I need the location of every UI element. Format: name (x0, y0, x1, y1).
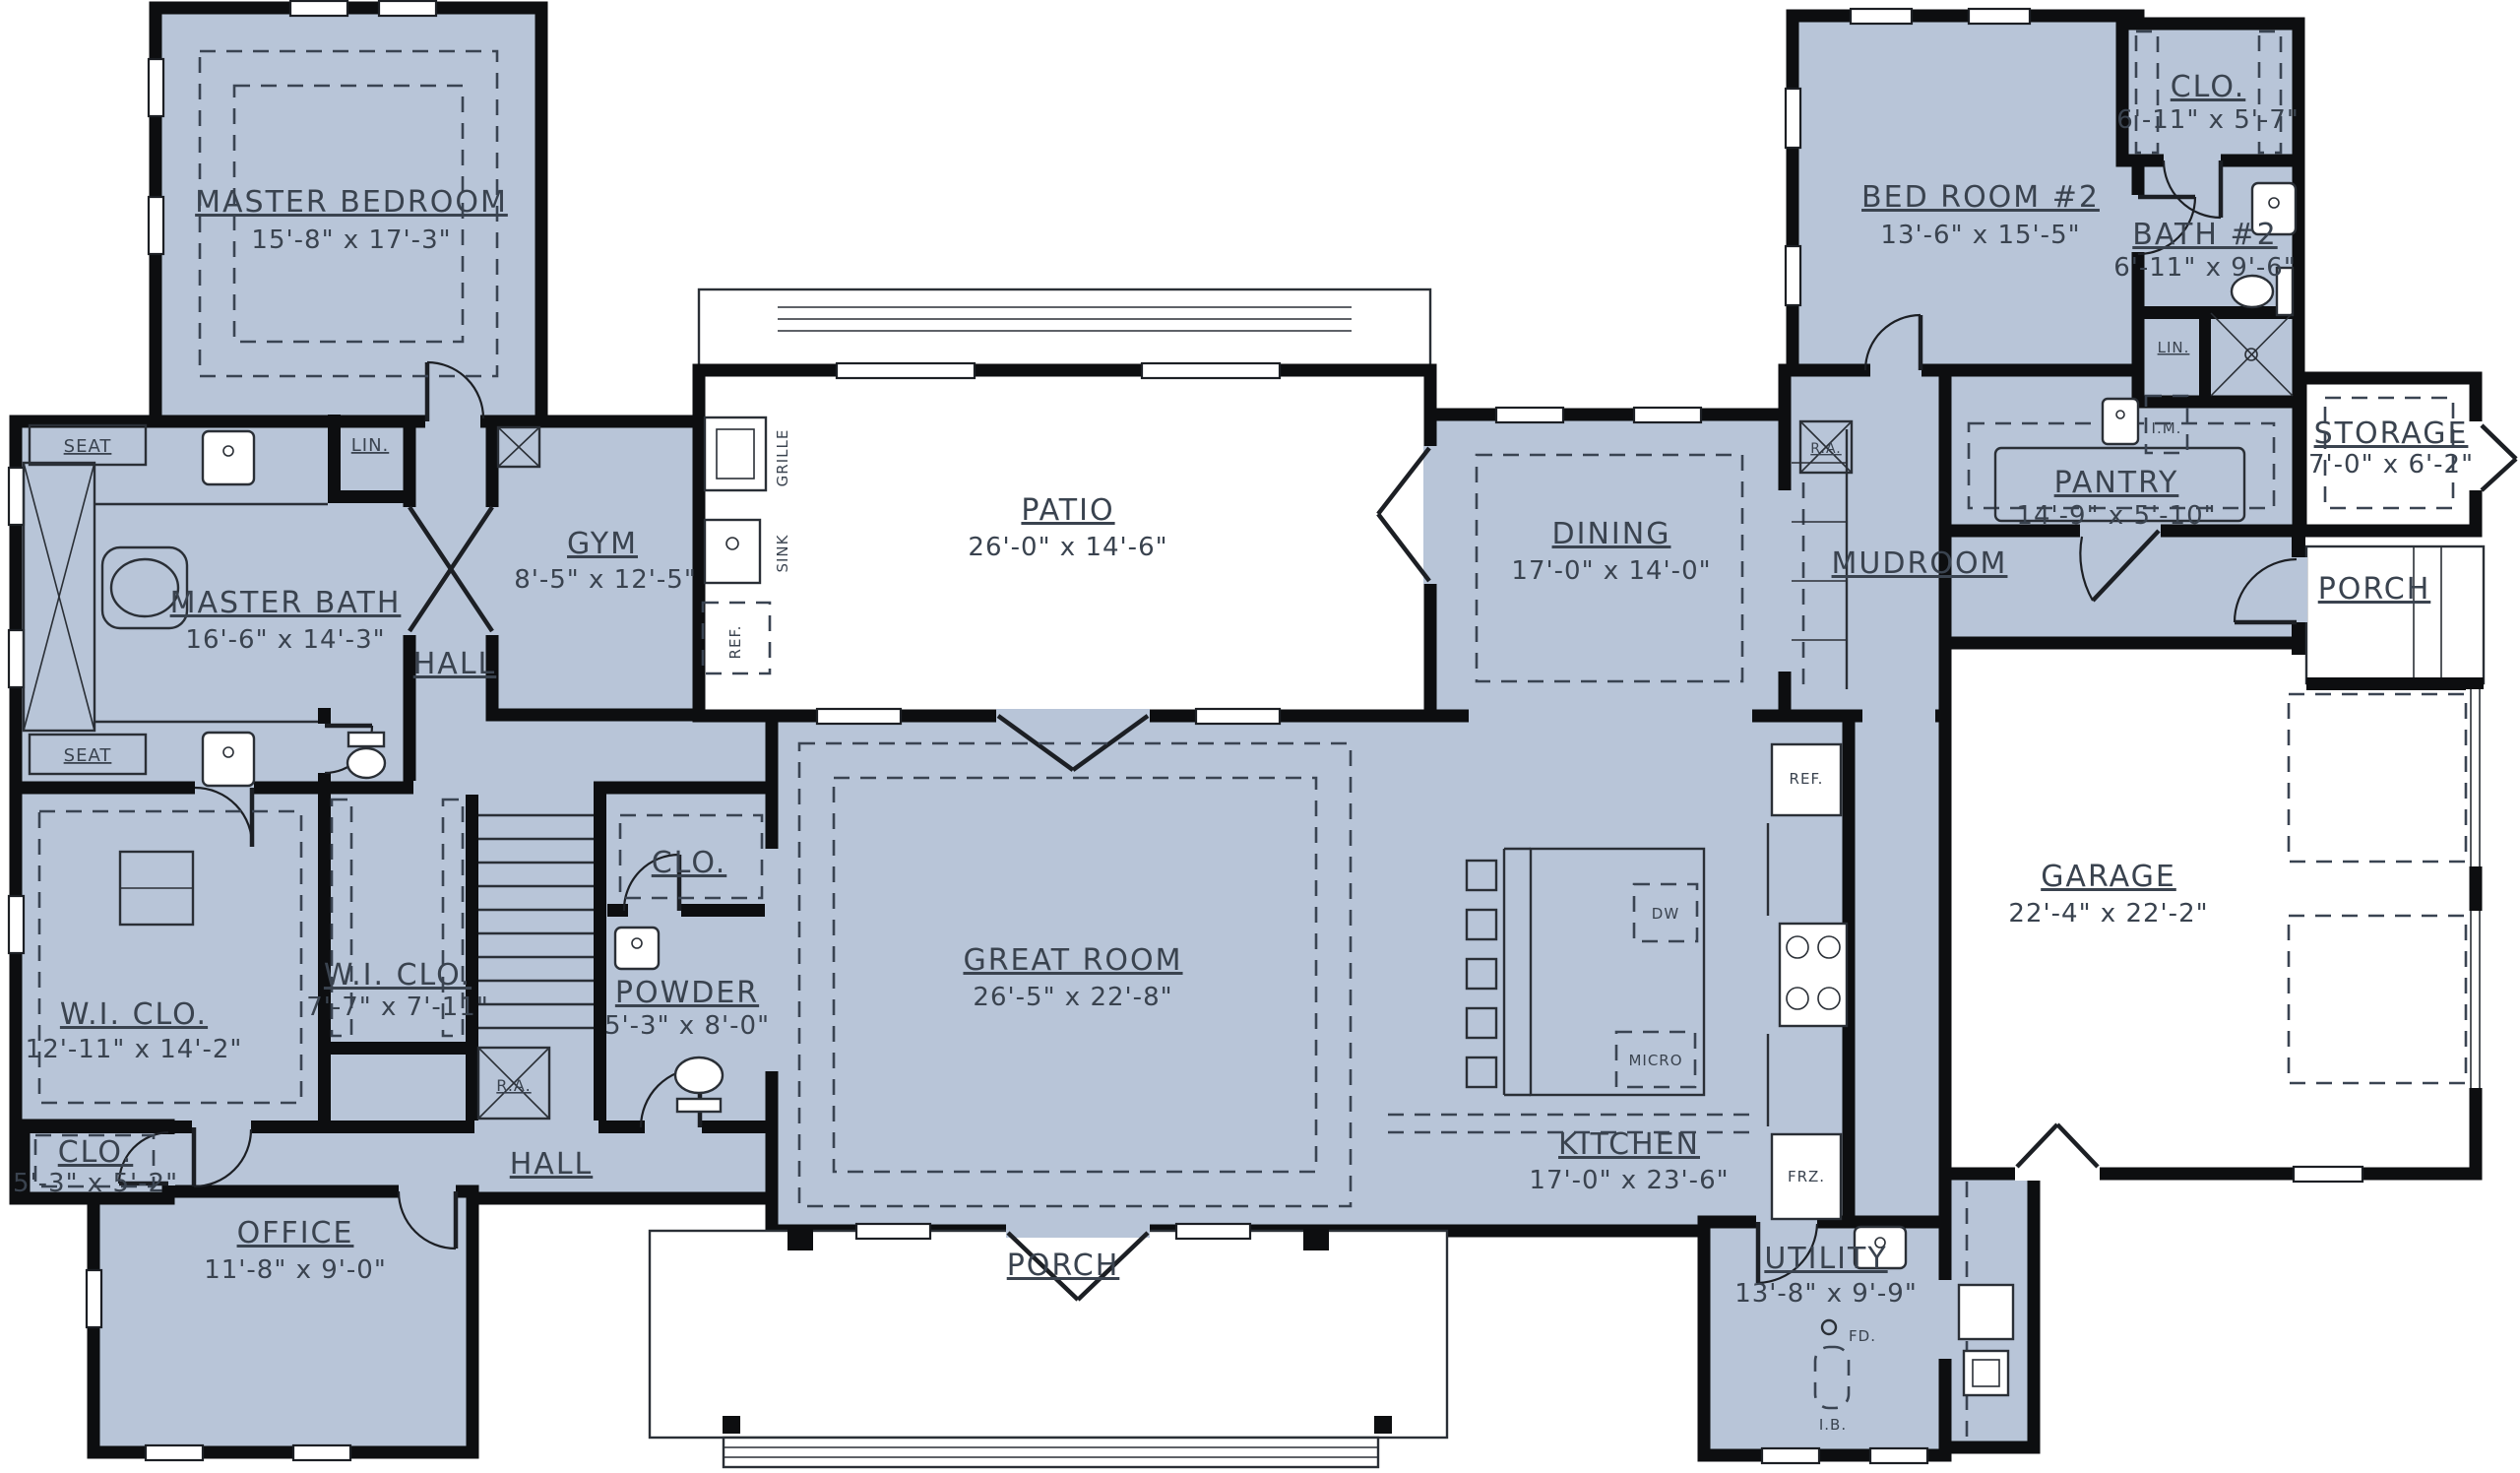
dims-patio: 26'-0" x 14'-6" (968, 533, 1167, 562)
label-closet2: CLO. (2171, 70, 2246, 104)
window (146, 1445, 203, 1460)
toilet-icon (675, 1057, 723, 1093)
sink-icon (203, 733, 254, 786)
window (1196, 709, 1280, 724)
label-dishwasher: DW (1652, 905, 1679, 923)
label-hall-lower: HALL (510, 1147, 594, 1182)
porch-post (1374, 1416, 1392, 1434)
label-storage: STORAGE (2314, 416, 2469, 451)
window (1634, 408, 1701, 422)
sink-icon (705, 520, 760, 583)
porch-post (723, 1416, 740, 1434)
window (87, 1270, 101, 1327)
porch-front-steps (724, 1438, 1378, 1467)
label-hall-upper: HALL (413, 647, 497, 681)
label-patio: PATIO (1021, 493, 1114, 528)
label-linen-master: LIN. (351, 435, 390, 456)
floor-plan-drawing: MASTER BEDROOM 15'-8" x 17'-3" MASTER BA… (0, 0, 2520, 1473)
dims-wic-hall: 7'-7" x 7'-11" (306, 993, 489, 1022)
room-porch-right (2306, 546, 2484, 683)
water-heater-icon (1964, 1351, 2008, 1395)
window (817, 709, 901, 724)
label-linen-bath2: LIN. (2158, 339, 2190, 356)
window (293, 1445, 350, 1460)
label-wic-master: W.I. CLO. (60, 997, 208, 1032)
dims-closet2: 6'-11" x 5'-7" (2116, 105, 2299, 135)
label-freezer: FRZ. (1788, 1168, 1825, 1185)
dims-gym: 8'-5" x 12'-5" (514, 565, 697, 595)
window (290, 1, 347, 16)
window (1851, 9, 1912, 24)
window (1969, 9, 2030, 24)
dims-office: 11'-8" x 9'-0" (204, 1255, 387, 1285)
window (1870, 1448, 1927, 1463)
label-wic-hall: W.I. CLO. (324, 958, 472, 993)
label-return-air-dining: R.A. (1810, 441, 1841, 457)
label-bedroom2: BED ROOM #2 (1861, 180, 2100, 215)
grill-icon (705, 417, 766, 490)
label-bath2: BATH #2 (2132, 218, 2277, 252)
window (1496, 408, 1563, 422)
dims-wic-master: 12'-11" x 14'-2" (26, 1035, 243, 1064)
label-ironing-board: I.B. (1819, 1416, 1847, 1434)
window (149, 59, 163, 116)
label-patio-sink: SINK (774, 534, 791, 572)
dims-garage: 22'-4" x 22'-2" (2008, 899, 2208, 929)
toilet-icon (347, 748, 385, 778)
sink-icon (2103, 399, 2138, 444)
water-heater-icon (1959, 1285, 2013, 1339)
label-ice-maker: I.M. (2152, 419, 2182, 437)
window (2294, 1167, 2362, 1182)
porch-column (1303, 1225, 1329, 1250)
window (149, 197, 163, 254)
label-porch-front: PORCH (1007, 1249, 1120, 1283)
label-gym: GYM (567, 527, 638, 561)
window (856, 1224, 930, 1239)
window (837, 363, 975, 378)
dims-master-bedroom: 15'-8" x 17'-3" (251, 225, 451, 255)
window (9, 630, 24, 687)
dims-storage: 7'-0" x 6'-2" (2308, 450, 2474, 480)
label-garage: GARAGE (2041, 860, 2176, 894)
label-mudroom: MUDROOM (1832, 546, 2008, 581)
porch-right-back-wall (2306, 677, 2484, 690)
chase (498, 427, 539, 467)
window (1142, 363, 1280, 378)
label-floor-drain: FD. (1849, 1327, 1876, 1345)
label-master-bedroom: MASTER BEDROOM (195, 185, 508, 220)
dims-dining: 17'-0" x 14'-0" (1511, 556, 1711, 586)
label-refrigerator: REF. (1790, 770, 1824, 788)
label-clo-office: CLO. (58, 1135, 134, 1170)
floor-plan-page: MASTER BEDROOM 15'-8" x 17'-3" MASTER BA… (0, 0, 2520, 1473)
dims-pantry: 14'-9" x 5'-10" (2016, 501, 2216, 531)
dims-clo-office: 5'-3" x 5'-2" (13, 1169, 178, 1198)
label-utility: UTILITY (1764, 1242, 1887, 1276)
window (1786, 246, 1800, 305)
window (1786, 89, 1800, 148)
label-seat-top: SEAT (64, 436, 112, 457)
porch-column (787, 1225, 813, 1250)
label-great-room: GREAT ROOM (963, 943, 1182, 978)
dims-bath2: 6'-11" x 9'-6" (2113, 253, 2297, 283)
dims-kitchen: 17'-0" x 23'-6" (1529, 1166, 1729, 1195)
toilet-icon (677, 1099, 721, 1112)
label-powder: POWDER (615, 976, 759, 1010)
dims-utility: 13'-8" x 9'-9" (1734, 1279, 1918, 1309)
window (1762, 1448, 1819, 1463)
toilet-icon (348, 733, 384, 746)
label-dining: DINING (1552, 517, 1671, 551)
patio-roof-band (699, 289, 1430, 370)
label-grille: GRILLE (774, 429, 791, 487)
label-kitchen: KITCHEN (1558, 1127, 1700, 1162)
window (379, 1, 436, 16)
window (1176, 1224, 1250, 1239)
window (9, 468, 24, 525)
sink-icon (203, 431, 254, 484)
dims-great-room: 26'-5" x 22'-8" (973, 983, 1172, 1012)
label-clo-hall: CLO. (652, 846, 727, 880)
label-master-bath: MASTER BATH (170, 586, 402, 620)
window (9, 896, 24, 953)
label-office: OFFICE (237, 1216, 354, 1250)
label-pantry: PANTRY (2054, 466, 2179, 500)
label-microwave: MICRO (1628, 1052, 1682, 1069)
label-return-air-stairs: R.A. (496, 1076, 531, 1095)
dims-master-bath: 16'-6" x 14'-3" (185, 625, 385, 655)
label-porch-right: PORCH (2318, 572, 2431, 607)
label-seat-bottom: SEAT (64, 745, 112, 766)
label-patio-ref: REF. (726, 625, 744, 660)
dims-powder: 5'-3" x 8'-0" (604, 1011, 770, 1041)
dims-bedroom2: 13'-6" x 15'-5" (1880, 221, 2080, 250)
